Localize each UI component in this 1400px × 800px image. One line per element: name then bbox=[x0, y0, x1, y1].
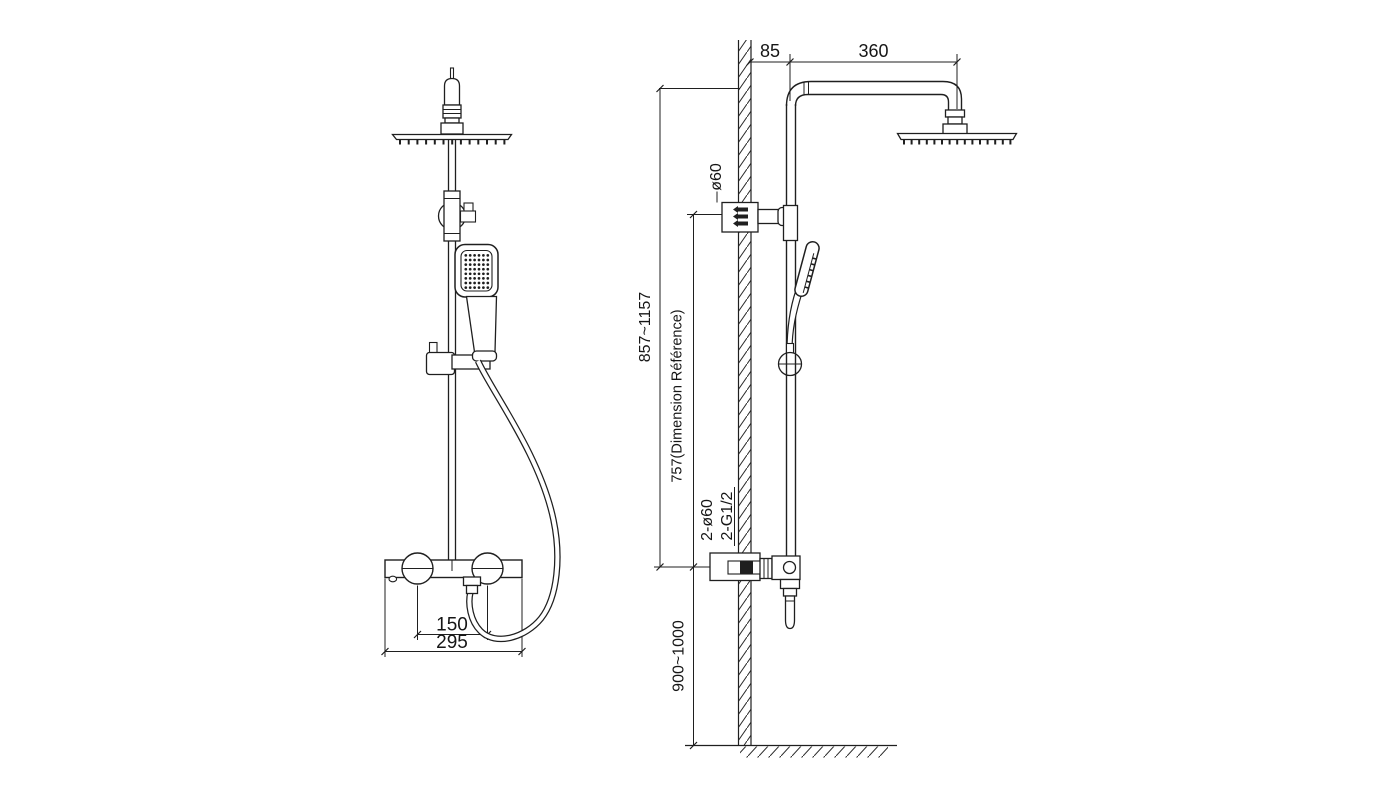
overhead-shower-side bbox=[898, 110, 1017, 145]
side-dimensions-vertical: 857~1157 757(Dimension Référence) 900~10… bbox=[637, 85, 740, 749]
shower-nozzles-side bbox=[904, 140, 1010, 145]
hand-shower-side bbox=[787, 240, 821, 351]
valve-spout bbox=[389, 576, 397, 582]
bracket-screws bbox=[733, 206, 748, 227]
dim-wall-offset-label: 85 bbox=[760, 41, 780, 61]
side-dimensions-top: 85 360 bbox=[747, 41, 961, 109]
floor-section bbox=[685, 746, 897, 758]
shower-hose-front bbox=[464, 361, 558, 639]
shower-head-plate-side bbox=[898, 134, 1017, 140]
label-bracket-diameter: ø60 bbox=[708, 163, 725, 202]
shower-column-drawing: 150 295 bbox=[0, 0, 1400, 800]
label-inlet-diameter: 2-ø60 bbox=[699, 499, 716, 541]
upper-bracket-front bbox=[439, 191, 476, 241]
overhead-shower-front bbox=[393, 68, 512, 145]
dim-valve-width-label: 295 bbox=[436, 632, 468, 653]
hand-shower-handle-cap bbox=[473, 351, 497, 361]
dim-install-height-label: 900~1000 bbox=[671, 620, 688, 692]
hand-shower-handle-front bbox=[467, 297, 497, 353]
side-view: 857~1157 757(Dimension Référence) 900~10… bbox=[637, 40, 1017, 758]
wall-bracket-side bbox=[722, 203, 798, 241]
dim-install-height: 900~1000 bbox=[671, 567, 698, 749]
dim-reference-height-label: 757(Dimension Référence) bbox=[670, 309, 686, 482]
dim-height-range: 857~1157 bbox=[637, 85, 664, 571]
slider-bracket-side bbox=[778, 344, 802, 376]
hand-shower-front bbox=[427, 245, 499, 375]
front-dimensions: 150 295 bbox=[382, 579, 526, 658]
inlet-thread-label: 2-G1/2 bbox=[719, 491, 736, 540]
hose-nut-front bbox=[464, 577, 481, 586]
shower-head-plate-front bbox=[393, 135, 512, 140]
wall-section bbox=[739, 40, 752, 746]
dim-arm-length-label: 360 bbox=[858, 41, 888, 61]
thermostatic-valve-front bbox=[385, 553, 522, 584]
shower-nozzles-front bbox=[400, 140, 504, 145]
dim-reference-height: 757(Dimension Référence) bbox=[670, 211, 698, 571]
inlet-diameter-label: 2-ø60 bbox=[699, 499, 716, 541]
bracket-diameter-label: ø60 bbox=[708, 163, 725, 191]
technical-drawing-canvas: 150 295 bbox=[0, 0, 1400, 800]
dim-height-range-label: 857~1157 bbox=[637, 292, 654, 363]
thermostatic-valve-side bbox=[710, 553, 800, 629]
front-view: 150 295 bbox=[382, 68, 558, 657]
shower-arm-side bbox=[787, 82, 962, 111]
label-inlet-thread: 2-G1/2 bbox=[719, 487, 736, 546]
